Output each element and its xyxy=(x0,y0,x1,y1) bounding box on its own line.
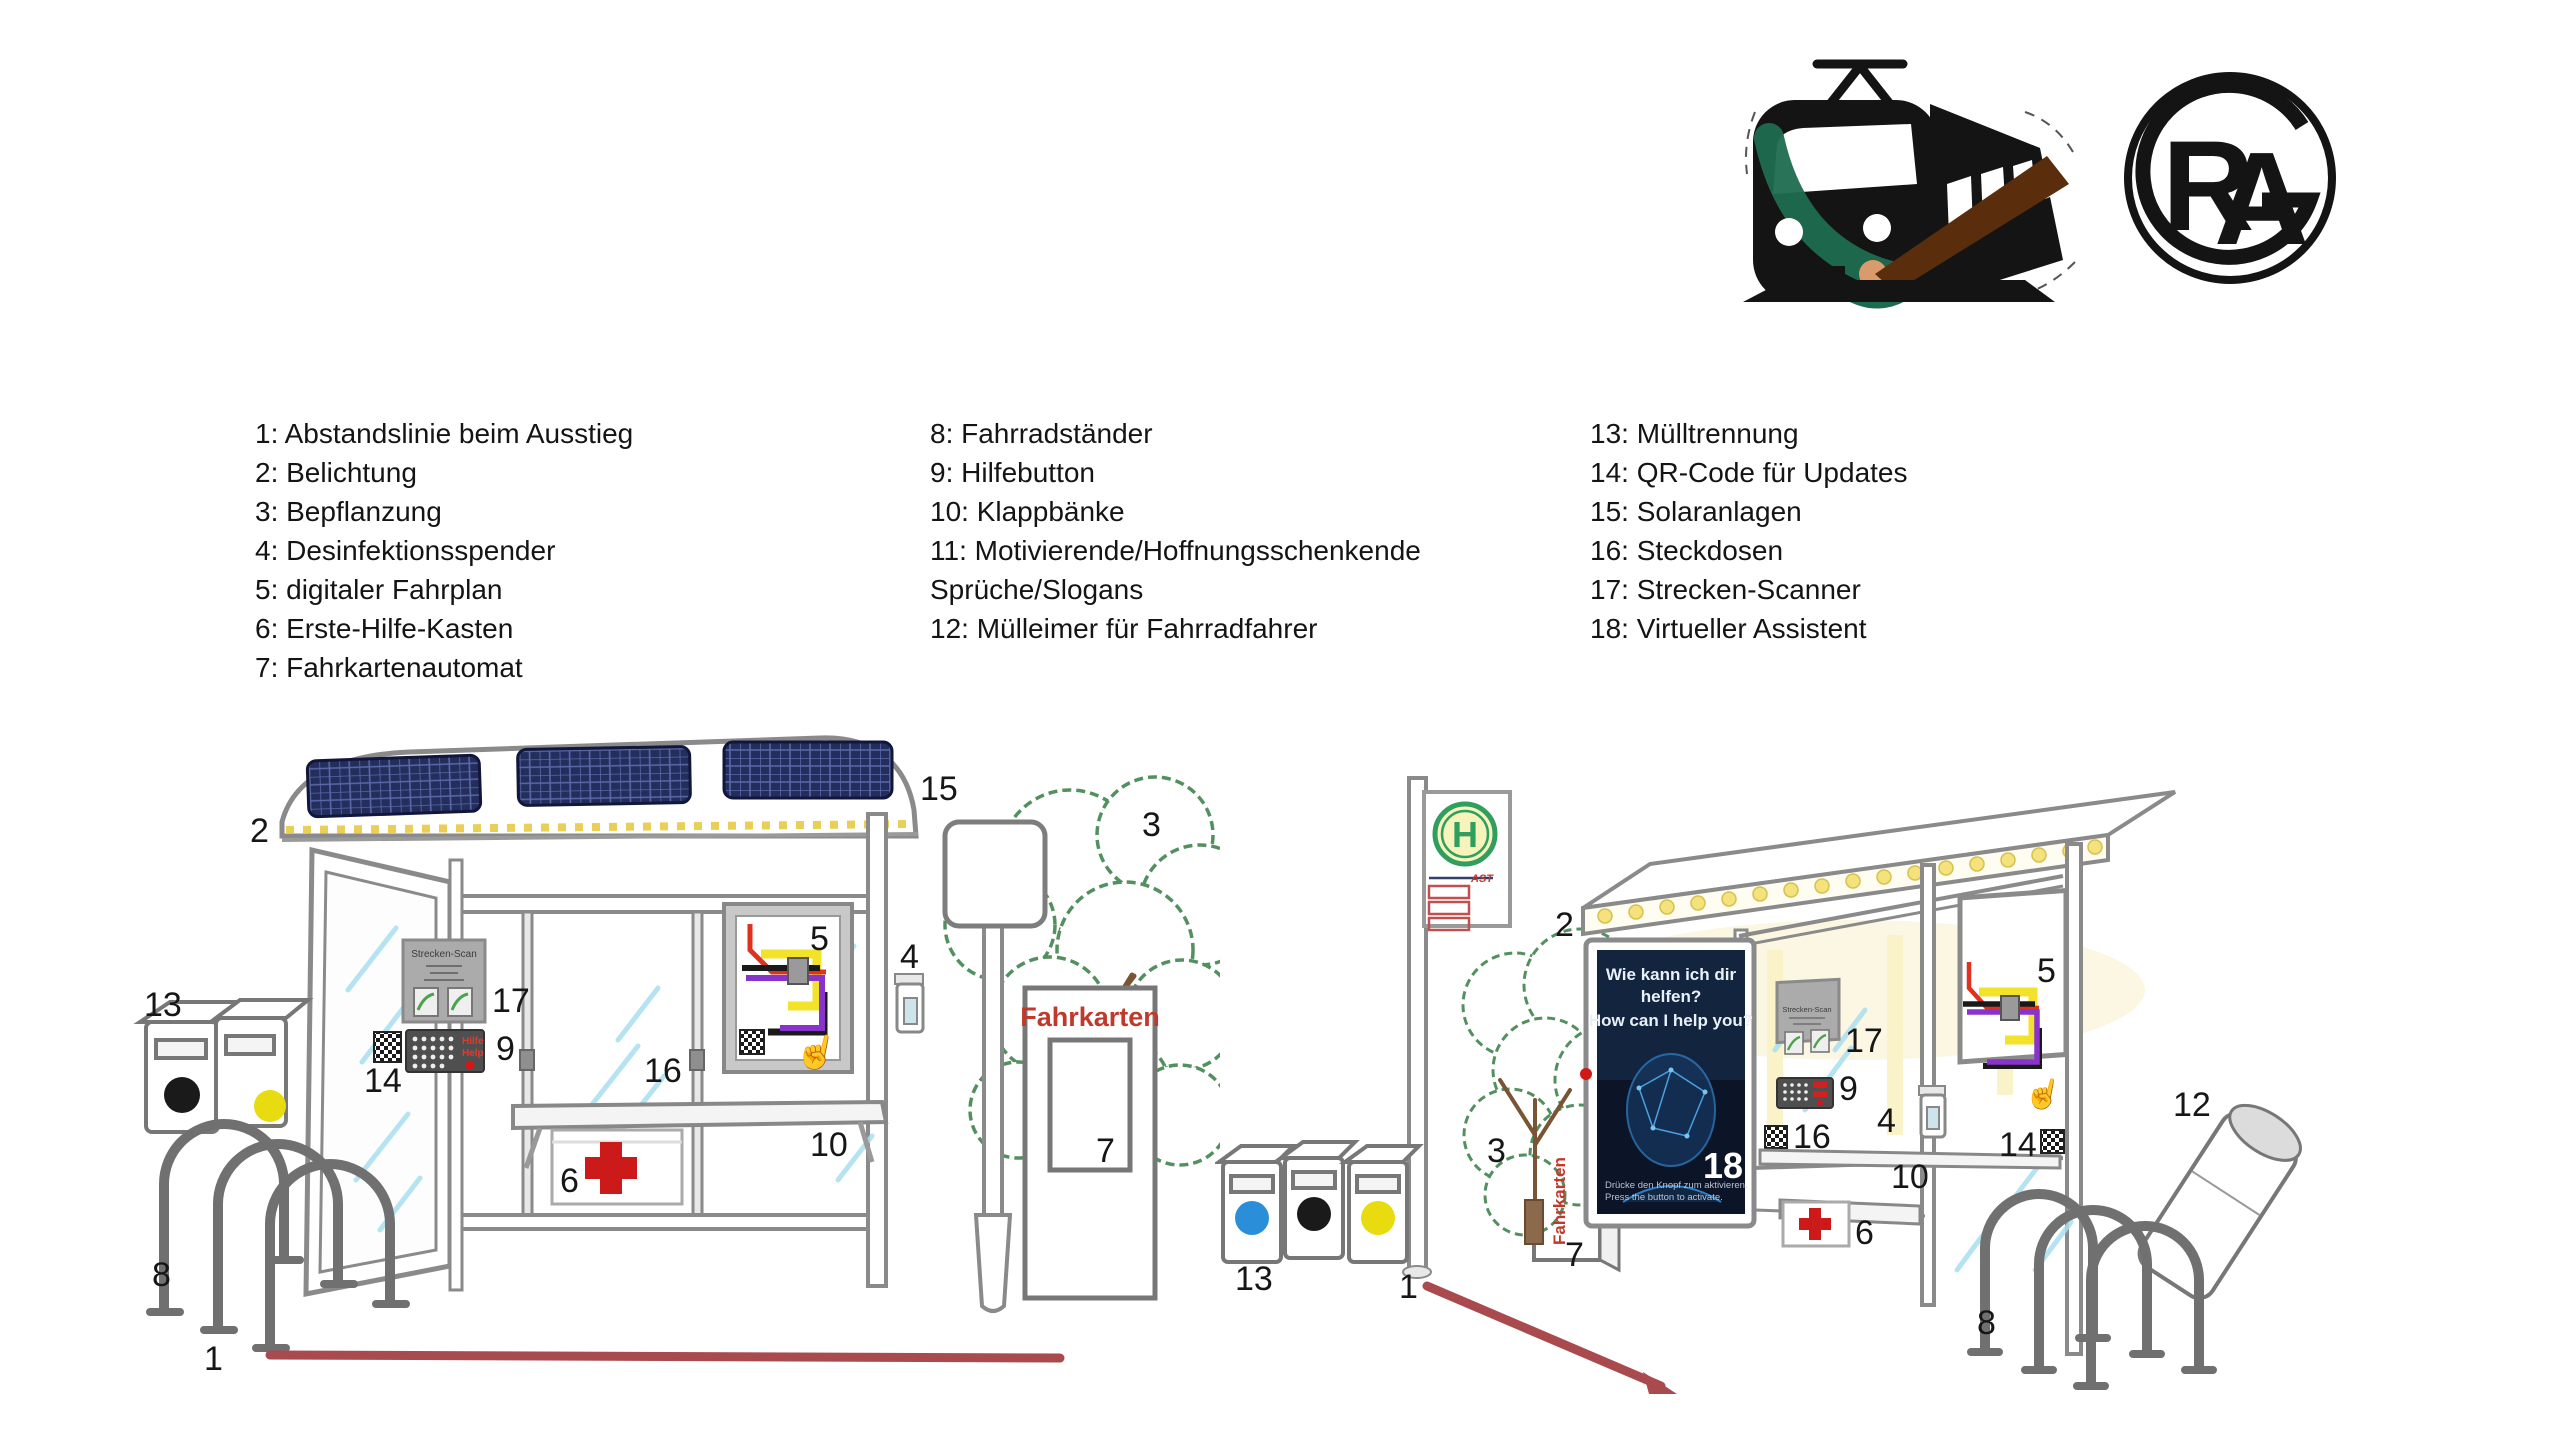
callout-8: 8 xyxy=(1977,1304,1996,1342)
callout-5: 5 xyxy=(2037,952,2056,990)
strecken-scan-title: Strecken-Scan xyxy=(411,949,477,960)
legend-item: 16: Steckdosen xyxy=(1590,531,1908,570)
callout-9: 9 xyxy=(496,1030,515,1068)
callout-16: 16 xyxy=(644,1052,682,1090)
slide-canvas: R A 1: Abstandslinie beim Ausstieg 2: Be… xyxy=(0,0,2560,1440)
shelter-roof xyxy=(282,738,918,840)
qr-code-icon xyxy=(2041,1130,2064,1153)
callout-3: 3 xyxy=(1487,1132,1506,1170)
legend-column-1: 1: Abstandslinie beim Ausstieg 2: Belich… xyxy=(255,414,633,687)
bin-sticker-yellow-icon xyxy=(1361,1201,1395,1235)
gra-monogram-icon: R A xyxy=(2128,76,2332,280)
legend-item: 5: digitaler Fahrplan xyxy=(255,570,633,609)
callout-1: 1 xyxy=(1399,1268,1418,1306)
help-button-icon xyxy=(466,1061,475,1070)
h-sign-letter: H xyxy=(1452,814,1478,855)
activation-button-icon xyxy=(1580,1068,1592,1080)
callout-14: 14 xyxy=(1999,1126,2037,1164)
shelter-roof xyxy=(1583,792,2175,934)
poster-number: 18 xyxy=(1703,1145,1743,1186)
legend-item: 18: Virtueller Assistent xyxy=(1590,609,1908,648)
legend-item: 11: Motivierende/Hoffnungsschenkende xyxy=(930,531,1421,570)
ast-label: AST xyxy=(1470,873,1494,885)
legend-item: 17: Strecken-Scanner xyxy=(1590,570,1908,609)
legend-item: 15: Solaranlagen xyxy=(1590,492,1908,531)
callout-6: 6 xyxy=(560,1162,579,1200)
legend-item: 10: Klappbänke xyxy=(930,492,1421,531)
distance-line xyxy=(270,1355,1060,1358)
first-aid-kit xyxy=(1783,1202,1849,1246)
legend-item: 6: Erste-Hilfe-Kasten xyxy=(255,609,633,648)
callout-13: 13 xyxy=(144,986,182,1024)
gra-letter-a: A xyxy=(2214,125,2309,272)
callout-16: 16 xyxy=(1793,1118,1831,1156)
sanitizer-dispenser-icon xyxy=(895,974,923,1032)
callout-7: 7 xyxy=(1565,1236,1584,1274)
hilfe-text: Hilfe xyxy=(462,1036,484,1047)
fahrkarten-vertical-label: Fahrkarten xyxy=(1550,1157,1569,1245)
legend-item: 4: Desinfektionsspender xyxy=(255,531,633,570)
callout-5: 5 xyxy=(810,920,829,958)
callout-7: 7 xyxy=(1096,1132,1115,1170)
bin-sticker-black-icon xyxy=(1297,1197,1331,1231)
legend-item: 7: Fahrkartenautomat xyxy=(255,648,633,687)
gra-logo: R A xyxy=(2112,48,2352,313)
help-button-keypad xyxy=(1777,1078,1833,1108)
legend-item: 2: Belichtung xyxy=(255,453,633,492)
tilted-bike-bin xyxy=(2133,1093,2311,1304)
legend-item: 1: Abstandslinie beim Ausstieg xyxy=(255,414,633,453)
callout-10: 10 xyxy=(810,1126,848,1164)
train-logo xyxy=(1725,52,2120,322)
callout-2: 2 xyxy=(250,812,269,850)
callout-17: 17 xyxy=(492,982,530,1020)
bin-sticker-yellow-icon xyxy=(254,1090,286,1122)
callout-4: 4 xyxy=(1877,1102,1896,1140)
legend-item: 8: Fahrradständer xyxy=(930,414,1421,453)
callout-13: 13 xyxy=(1235,1260,1273,1298)
sanitizer-dispenser-icon xyxy=(1919,1086,1945,1137)
help-text: Help xyxy=(462,1048,484,1059)
assistant-footer2: Press the button to activate. xyxy=(1605,1192,1723,1203)
legend-column-3: 13: Mülltrennung 14: QR-Code für Updates… xyxy=(1590,414,1908,648)
strecken-scanner-panel: Strecken-Scan xyxy=(403,940,485,1022)
distance-line xyxy=(1427,1286,1677,1394)
callout-14: 14 xyxy=(364,1062,402,1100)
qr-code-icon xyxy=(740,1030,764,1054)
qr-code-icon xyxy=(1765,1126,1787,1148)
legend-item: Sprüche/Slogans xyxy=(930,570,1421,609)
right-shelter-scene: Fahrkarten H AST xyxy=(1215,750,2355,1440)
hand-pointer-icon: ☝ xyxy=(2021,1071,2065,1115)
callout-3: 3 xyxy=(1142,806,1161,844)
legend-item: 9: Hilfebutton xyxy=(930,453,1421,492)
bin-sticker-black-icon xyxy=(164,1077,200,1113)
waste-separation-bins xyxy=(1219,1142,1419,1262)
strecken-scan-title: Strecken-Scan xyxy=(1782,1005,1831,1014)
qr-code-icon xyxy=(374,1032,401,1062)
callout-12: 12 xyxy=(2173,1086,2211,1124)
ticket-machine: Fahrkarten xyxy=(1020,988,1160,1298)
callout-2: 2 xyxy=(1555,906,1574,944)
fahrkarten-label: Fahrkarten xyxy=(1020,1002,1160,1032)
callout-10: 10 xyxy=(1891,1158,1929,1196)
callout-8: 8 xyxy=(152,1256,171,1294)
left-shelter-scene: Fahrkarten xyxy=(120,710,1220,1440)
help-button-keypad: Hilfe Help xyxy=(406,1030,484,1072)
callout-9: 9 xyxy=(1839,1070,1858,1108)
callout-15: 15 xyxy=(920,770,958,808)
callout-1: 1 xyxy=(204,1340,223,1378)
assistant-line1: Wie kann ich dir xyxy=(1606,965,1737,984)
assistant-line2: helfen? xyxy=(1641,987,1701,1006)
assistant-line3: How can I help you? xyxy=(1589,1011,1753,1030)
legend-column-2: 8: Fahrradständer 9: Hilfebutton 10: Kla… xyxy=(930,414,1421,648)
help-button-icon xyxy=(1817,1100,1823,1106)
virtual-assistant-poster: Wie kann ich dir helfen? How can I help … xyxy=(1580,940,1754,1226)
bin-sticker-blue-icon xyxy=(1235,1201,1269,1235)
legend-item: 14: QR-Code für Updates xyxy=(1590,453,1908,492)
callout-4: 4 xyxy=(900,938,919,976)
train-paintbrush-icon xyxy=(1743,64,2075,302)
legend-item: 13: Mülltrennung xyxy=(1590,414,1908,453)
legend-item: 3: Bepflanzung xyxy=(255,492,633,531)
callout-6: 6 xyxy=(1855,1214,1874,1252)
digital-timetable: ☝ xyxy=(724,904,852,1076)
callout-17: 17 xyxy=(1845,1022,1883,1060)
legend-item: 12: Mülleimer für Fahrradfahrer xyxy=(930,609,1421,648)
